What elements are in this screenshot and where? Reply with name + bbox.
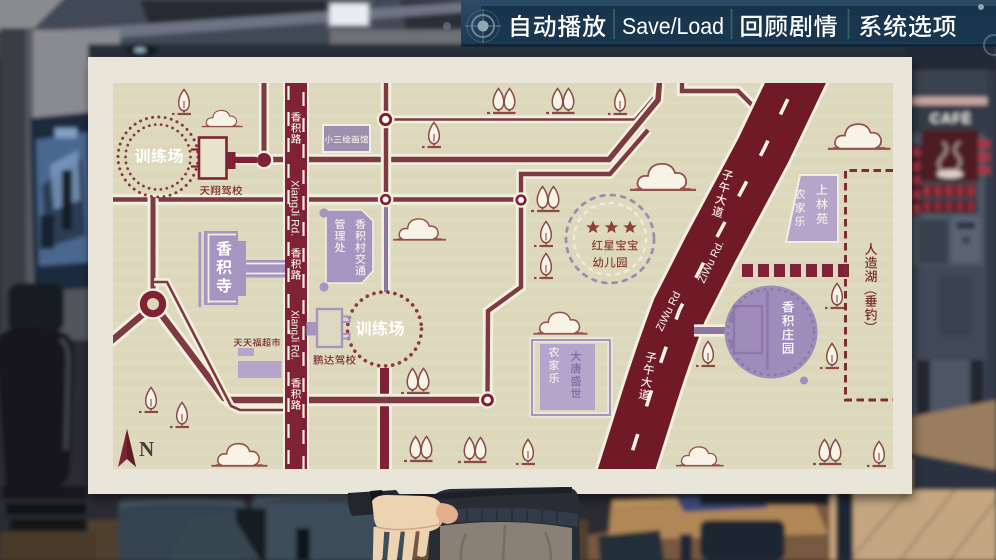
svg-text:N: N — [139, 437, 154, 461]
svg-text:Save/Load: Save/Load — [622, 13, 724, 39]
svg-text:XiangJi Rd.: XiangJi Rd. — [289, 310, 301, 360]
svg-text:CAFÈ: CAFÈ — [930, 110, 972, 126]
svg-text:XiangJi Rd.: XiangJi Rd. — [289, 180, 301, 236]
